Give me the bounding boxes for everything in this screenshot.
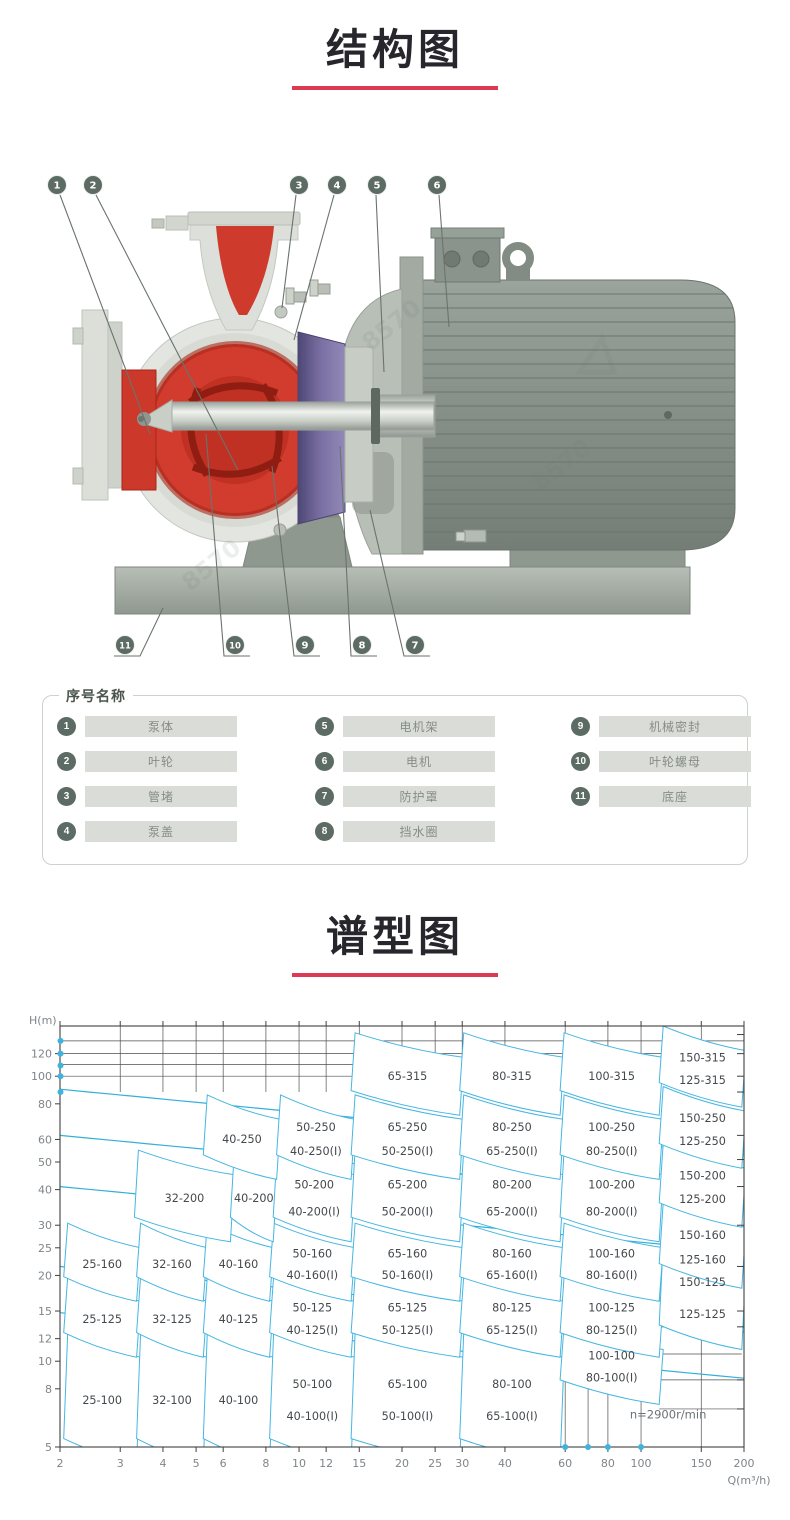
chart-region-label: 32-200	[165, 1192, 205, 1205]
legend-item: 2叶轮	[57, 751, 237, 772]
item-number-badge: 10	[571, 752, 590, 771]
legend-item: 3管堵	[57, 786, 237, 807]
x-tick-label: 2	[57, 1457, 64, 1470]
discharge-flange	[188, 212, 300, 225]
chart-region-label: 50-100(I)	[382, 1410, 434, 1423]
callout-2: 2	[84, 176, 103, 195]
item-label: 电机架	[343, 716, 495, 737]
legend-item: 6电机	[315, 751, 495, 772]
chart-region-label: 50-125	[293, 1302, 333, 1315]
x-tick-label: 25	[428, 1457, 442, 1470]
terminal-hole	[444, 251, 460, 267]
y-tick-label: 80	[38, 1098, 52, 1111]
motor-pedestal-lower	[510, 550, 685, 567]
chart-region-label: 65-160	[388, 1248, 428, 1261]
chart-region-label: 80-125(I)	[586, 1324, 638, 1337]
parts-legend: 序号名称 1泵体 2叶轮 3管堵 4泵盖 5电机架 6电机 7防护罩 8挡水圈 …	[42, 695, 748, 865]
chart-title-underline	[292, 973, 498, 977]
svg-text:2: 2	[90, 181, 97, 192]
chart-region-label: 80-125	[492, 1302, 532, 1315]
inlet-flange	[82, 310, 108, 500]
chart-region-label: 65-100	[388, 1378, 428, 1391]
chart-region-label: 65-125	[388, 1302, 428, 1315]
x-tick-label: 10	[292, 1457, 306, 1470]
legend-item: 10叶轮螺母	[571, 751, 751, 772]
chart-region-label: 100-100	[588, 1350, 635, 1363]
chart-region-label: 150-200	[679, 1170, 726, 1183]
callout-1: 1	[48, 176, 67, 195]
legend-column-1: 1泵体 2叶轮 3管堵 4泵盖	[57, 716, 237, 842]
chart-region-label: 80-100(I)	[586, 1372, 638, 1385]
chart-region-label: 32-160	[152, 1258, 192, 1271]
chart-region-label: 40-125(I)	[287, 1324, 339, 1337]
svg-text:4: 4	[334, 181, 341, 192]
chart-region-label: 80-160	[492, 1248, 532, 1261]
structure-title-underline	[292, 86, 498, 90]
y-tick-label: 30	[38, 1219, 52, 1232]
item-label: 底座	[599, 786, 751, 807]
x-tick-label: 150	[691, 1457, 712, 1470]
x-tick-label: 3	[117, 1457, 124, 1470]
legend-column-2: 5电机架 6电机 7防护罩 8挡水圈	[315, 716, 495, 842]
y-tick-label: 60	[38, 1133, 52, 1146]
chart-region-label: 80-200	[492, 1179, 532, 1192]
item-number-badge: 2	[57, 752, 76, 771]
structure-section-title: 结构图	[0, 16, 790, 77]
svg-text:9: 9	[302, 641, 309, 652]
svg-text:6: 6	[434, 181, 441, 192]
y-tick-label: 120	[31, 1048, 52, 1061]
x-tick-label: 8	[262, 1457, 269, 1470]
discharge-flange-tab	[166, 216, 188, 230]
chart-region-label: 40-200	[234, 1192, 274, 1205]
chart-region-label: 50-125(I)	[382, 1324, 434, 1337]
y-tick-label: 8	[45, 1383, 52, 1396]
item-number-badge: 9	[571, 717, 590, 736]
motor	[400, 228, 735, 554]
terminal-hole	[473, 251, 489, 267]
svg-text:1: 1	[54, 181, 61, 192]
item-label: 泵体	[85, 716, 237, 737]
chart-region-label: 50-200	[294, 1179, 334, 1192]
y-tick-label: 100	[31, 1070, 52, 1083]
chart-region-label: 125-315	[679, 1074, 726, 1087]
y-tick-label: 40	[38, 1184, 52, 1197]
chart-region-label: 150-125	[679, 1276, 726, 1289]
lifting-eye-base	[506, 268, 530, 280]
suction-chamber	[122, 370, 156, 490]
selection-chart-svg: 25-10032-10040-10050-10040-100(I)65-1005…	[27, 1014, 777, 1496]
chart-region-label: 65-160(I)	[486, 1269, 538, 1282]
chart-region-label: 40-200(I)	[288, 1205, 340, 1218]
item-number-badge: 3	[57, 787, 76, 806]
y-tick-label: 12	[38, 1333, 52, 1346]
callout-11: 11	[116, 636, 135, 655]
legend-title: 序号名称	[59, 686, 133, 706]
callout-8: 8	[353, 636, 372, 655]
item-number-badge: 1	[57, 717, 76, 736]
pump-structure-diagram: 8570 8570 8570 1 2 3 4 5 6 11 10 9 8 7	[40, 162, 750, 662]
callout-9: 9	[296, 636, 315, 655]
chart-region-label: 65-250	[388, 1121, 428, 1134]
x-tick-label: 100	[631, 1457, 652, 1470]
x-tick-label: 6	[220, 1457, 227, 1470]
chart-region-label: 25-160	[82, 1258, 122, 1271]
item-label: 机械密封	[599, 716, 751, 737]
pipe-plug	[275, 306, 287, 318]
x-tick-label: 20	[395, 1457, 409, 1470]
legend-item: 9机械密封	[571, 716, 751, 737]
chart-region-label: 50-250	[296, 1121, 336, 1134]
x-axis-title: Q(m³/h)	[727, 1474, 770, 1487]
chart-region-label: 100-125	[588, 1302, 635, 1315]
legend-item: 1泵体	[57, 716, 237, 737]
chart-region-label: 100-160	[588, 1248, 635, 1261]
chart-section-title: 谱型图	[0, 903, 790, 964]
motor-plug	[664, 411, 672, 419]
lifting-eye-icon	[506, 246, 530, 270]
x-tick-label: 15	[352, 1457, 366, 1470]
chart-region-label: 80-100	[492, 1378, 532, 1391]
item-number-badge: 6	[315, 752, 334, 771]
item-label: 防护罩	[343, 786, 495, 807]
x-tick-label: 12	[319, 1457, 333, 1470]
shaft-body	[172, 402, 434, 430]
chart-region-label: 25-100	[82, 1394, 122, 1407]
svg-text:5: 5	[374, 181, 381, 192]
chart-region-label: 40-125	[219, 1313, 259, 1326]
callout-6: 6	[428, 176, 447, 195]
chart-region-label: 40-250(I)	[290, 1145, 342, 1158]
svg-text:3: 3	[296, 181, 303, 192]
item-number-badge: 11	[571, 787, 590, 806]
chart-region-label: 80-160(I)	[586, 1269, 638, 1282]
y-axis-title: H(m)	[29, 1014, 57, 1027]
item-label: 挡水圈	[343, 821, 495, 842]
x-tick-label: 40	[498, 1457, 512, 1470]
y-tick-label: 5	[45, 1441, 52, 1454]
chart-region-label: 40-100(I)	[287, 1410, 339, 1423]
pump-diagram-svg: 8570 8570 8570 1 2 3 4 5 6 11 10 9 8 7	[40, 162, 750, 662]
flange-bolt	[73, 468, 83, 484]
flange-bolt	[152, 219, 164, 228]
item-label: 泵盖	[85, 821, 237, 842]
chart-region-label: 65-100(I)	[486, 1410, 538, 1423]
chart-region-label: 40-100	[219, 1394, 259, 1407]
chart-region-label: 65-200(I)	[486, 1205, 538, 1218]
chart-region-label: 32-100	[152, 1394, 192, 1407]
speed-annotation: n=2900r/min	[630, 1407, 706, 1421]
svg-text:10: 10	[229, 642, 241, 652]
callout-5: 5	[368, 176, 387, 195]
callout-7: 7	[406, 636, 425, 655]
callout-10: 10	[226, 636, 245, 655]
flange-bolt	[73, 328, 83, 344]
legend-item: 5电机架	[315, 716, 495, 737]
callout-3: 3	[290, 176, 309, 195]
legend-item: 4泵盖	[57, 821, 237, 842]
item-number-badge: 5	[315, 717, 334, 736]
item-number-badge: 7	[315, 787, 334, 806]
bracket-bolt	[464, 530, 486, 542]
y-tick-label: 10	[38, 1355, 52, 1368]
y-tick-label: 15	[38, 1305, 52, 1318]
svg-text:7: 7	[412, 641, 419, 652]
x-tick-label: 5	[193, 1457, 200, 1470]
chart-region-label: 50-160(I)	[382, 1269, 434, 1282]
chart-region-label: 100-200	[588, 1179, 635, 1192]
item-label: 电机	[343, 751, 495, 772]
item-label: 叶轮螺母	[599, 751, 751, 772]
chart-region-label: 150-250	[679, 1112, 726, 1125]
svg-text:11: 11	[119, 642, 131, 652]
chart-region-label: 100-315	[588, 1070, 635, 1083]
y-tick-label: 25	[38, 1242, 52, 1255]
chart-region-label: 65-315	[388, 1070, 428, 1083]
item-number-badge: 4	[57, 822, 76, 841]
x-tick-label: 30	[455, 1457, 469, 1470]
chart-region-label: 40-160	[219, 1258, 259, 1271]
bracket-bolt-head	[456, 532, 465, 541]
y-tick-label: 50	[38, 1156, 52, 1169]
item-label: 管堵	[85, 786, 237, 807]
x-tick-label: 4	[159, 1457, 166, 1470]
chart-region-label: 80-315	[492, 1070, 532, 1083]
inlet-flange-face	[108, 322, 122, 488]
legend-column-3: 9机械密封 10叶轮螺母 11底座	[571, 716, 751, 807]
pump-selection-chart: 25-10032-10040-10050-10040-100(I)65-1005…	[27, 1014, 777, 1504]
chart-region-label: 80-250(I)	[586, 1145, 638, 1158]
chart-region-label: 125-160	[679, 1254, 726, 1267]
chart-region-label: 65-125(I)	[486, 1324, 538, 1337]
chart-region-label: 65-250(I)	[486, 1145, 538, 1158]
x-tick-label: 60	[558, 1457, 572, 1470]
chart-region-label: 125-200	[679, 1193, 726, 1206]
chart-region-label: 40-160(I)	[287, 1269, 339, 1282]
chart-region-label: 50-100	[293, 1378, 333, 1391]
legend-item: 8挡水圈	[315, 821, 495, 842]
legend-item: 11底座	[571, 786, 751, 807]
item-label: 叶轮	[85, 751, 237, 772]
chart-region-label: 80-200(I)	[586, 1205, 638, 1218]
chart-region-label: 150-160	[679, 1229, 726, 1242]
chart-region-label: 50-160	[293, 1248, 333, 1261]
item-number-badge: 8	[315, 822, 334, 841]
y-tick-label: 20	[38, 1269, 52, 1282]
chart-region-label: 65-200	[388, 1179, 428, 1192]
chart-region-label: 25-125	[82, 1313, 122, 1326]
legend-item: 7防护罩	[315, 786, 495, 807]
water-slinger	[371, 388, 380, 444]
svg-text:8: 8	[359, 641, 366, 652]
callout-4: 4	[328, 176, 347, 195]
chart-region-label: 40-250	[222, 1133, 262, 1146]
x-tick-label: 80	[601, 1457, 615, 1470]
chart-region-label: 100-250	[588, 1121, 635, 1134]
chart-region-label: 50-200(I)	[382, 1205, 434, 1218]
chart-region-label: 80-250	[492, 1121, 532, 1134]
x-tick-label: 200	[734, 1457, 755, 1470]
chart-region-label: 125-250	[679, 1135, 726, 1148]
chart-region-label: 32-125	[152, 1313, 192, 1326]
chart-region-label: 50-250(I)	[382, 1145, 434, 1158]
chart-region-label: 150-315	[679, 1051, 726, 1064]
chart-region-label: 125-125	[679, 1308, 726, 1321]
